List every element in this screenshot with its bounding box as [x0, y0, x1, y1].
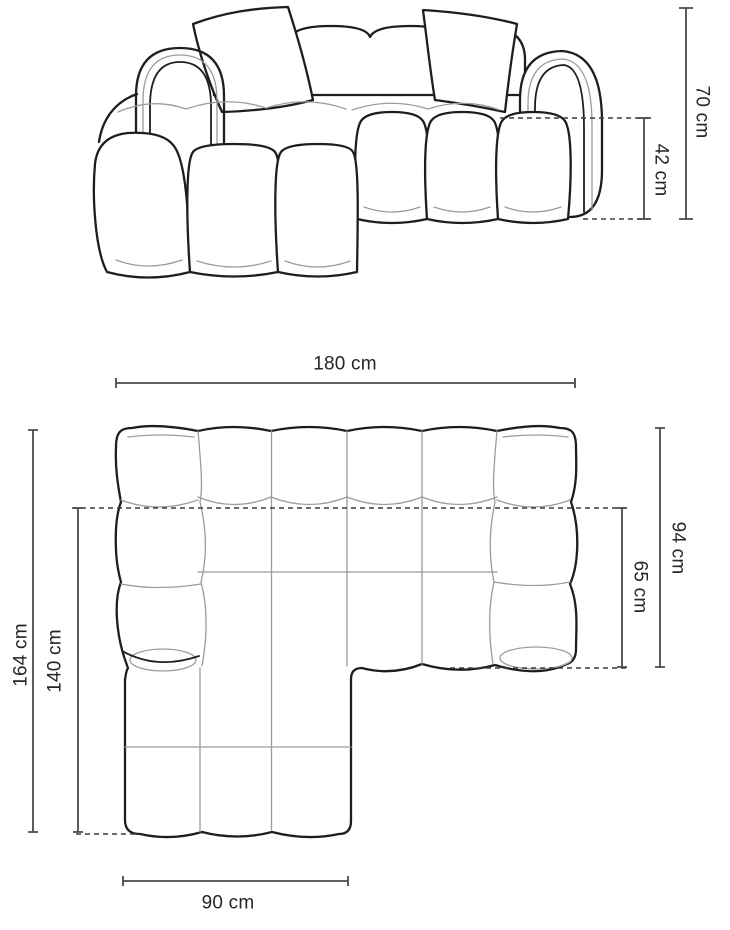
dim-label-body-depth: 94 cm [669, 522, 688, 575]
sofa-top-view [0, 330, 730, 930]
dimension-line-seat-depth [617, 508, 627, 667]
dim-label-inner-depth: 140 cm [46, 629, 65, 693]
dim-label-seat-depth: 65 cm [631, 561, 650, 614]
chaise-cushions [94, 133, 358, 278]
dim-label-chaise-width: 90 cm [202, 894, 255, 913]
dimension-line-chaise-width [123, 876, 348, 886]
sofa-front-view [0, 0, 730, 330]
seat-cushions-main [355, 112, 571, 223]
sofa-front-view-drawing [0, 0, 730, 330]
dim-label-seat-height: 42 cm [652, 144, 671, 197]
dimension-line-total-width [116, 378, 575, 388]
dim-label-total-depth: 164 cm [12, 623, 31, 687]
dimension-line-body-depth [655, 428, 665, 667]
dim-label-total-width: 180 cm [313, 355, 377, 374]
dimension-line-seat-height [637, 118, 651, 219]
seat-back-seams [118, 102, 500, 112]
dimension-line-inner-depth [73, 508, 83, 832]
sofa-top-view-drawing [0, 330, 730, 930]
pillow-right [423, 10, 517, 112]
sofa-dimensions-diagram: 70 cm 42 cm 180 cm 164 cm 140 cm 94 cm 6… [0, 0, 730, 930]
dim-label-total-height: 70 cm [693, 86, 712, 139]
